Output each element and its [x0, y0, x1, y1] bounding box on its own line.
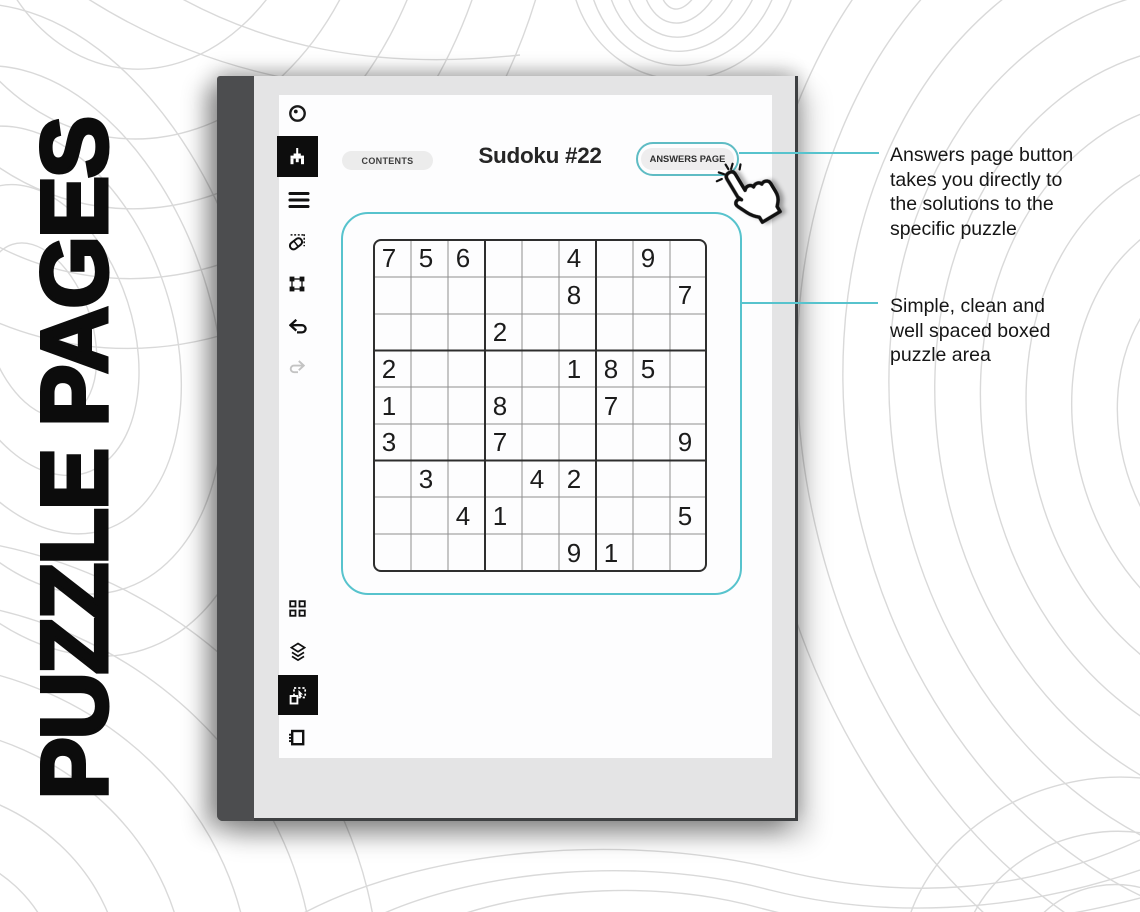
svg-text:3: 3 — [382, 427, 396, 457]
svg-text:2: 2 — [382, 354, 396, 384]
svg-text:3: 3 — [419, 464, 433, 494]
svg-text:1: 1 — [382, 391, 396, 421]
svg-text:1: 1 — [604, 538, 618, 568]
svg-text:8: 8 — [567, 280, 581, 310]
svg-text:4: 4 — [456, 501, 470, 531]
svg-text:4: 4 — [567, 243, 581, 273]
svg-text:2: 2 — [493, 317, 507, 347]
svg-text:1: 1 — [493, 501, 507, 531]
svg-text:4: 4 — [530, 464, 544, 494]
svg-text:9: 9 — [641, 243, 655, 273]
svg-text:9: 9 — [567, 538, 581, 568]
svg-text:5: 5 — [419, 243, 433, 273]
svg-text:5: 5 — [641, 354, 655, 384]
svg-text:7: 7 — [678, 280, 692, 310]
svg-text:2: 2 — [567, 464, 581, 494]
svg-text:5: 5 — [678, 501, 692, 531]
svg-text:7: 7 — [493, 427, 507, 457]
svg-text:7: 7 — [382, 243, 396, 273]
svg-text:8: 8 — [604, 354, 618, 384]
svg-text:8: 8 — [493, 391, 507, 421]
svg-text:7: 7 — [604, 391, 618, 421]
svg-text:1: 1 — [567, 354, 581, 384]
svg-text:9: 9 — [678, 427, 692, 457]
svg-text:6: 6 — [456, 243, 470, 273]
